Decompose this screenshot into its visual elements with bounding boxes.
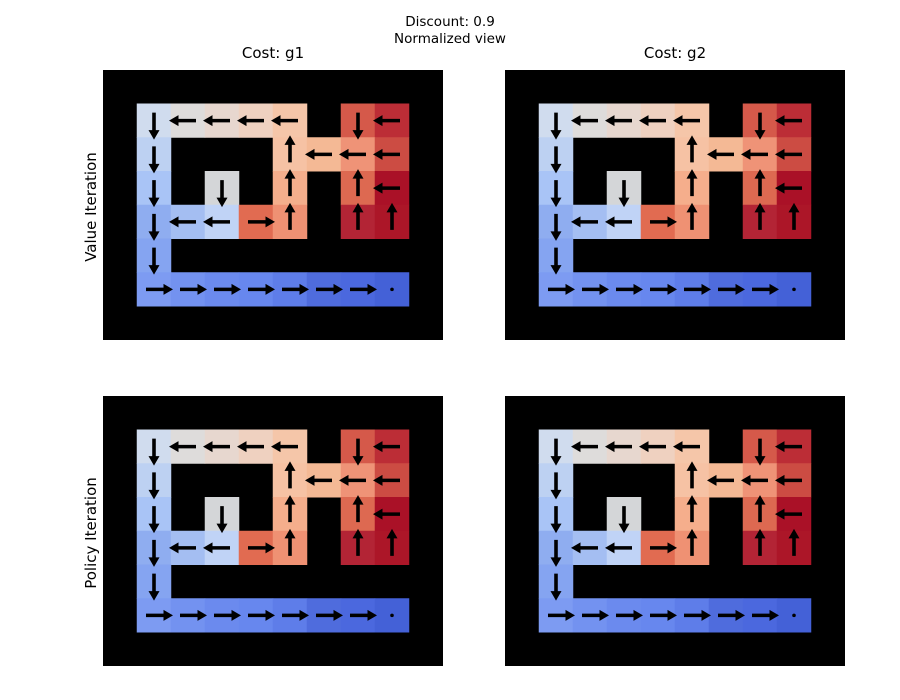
figure-title: Discount: 0.9 Normalized view [0,14,900,48]
column-title-cost-g2: Cost: g2 [505,44,845,62]
panel-policy-iteration-cost-g2 [505,396,845,666]
row-label-value-iteration: Value Iteration [82,152,100,262]
column-title-cost-g1: Cost: g1 [103,44,443,62]
row-label-policy-iteration: Policy Iteration [82,477,100,589]
goal-dot [390,614,394,618]
figure-canvas: Discount: 0.9 Normalized view Cost: g1 C… [0,0,900,700]
panel-value-iteration-cost-g2 [505,70,845,340]
figure-title-line1: Discount: 0.9 [0,14,900,31]
goal-dot [390,288,394,292]
goal-dot [792,288,796,292]
panel-policy-iteration-cost-g1 [103,396,443,666]
panel-value-iteration-cost-g1 [103,70,443,340]
goal-dot [792,614,796,618]
